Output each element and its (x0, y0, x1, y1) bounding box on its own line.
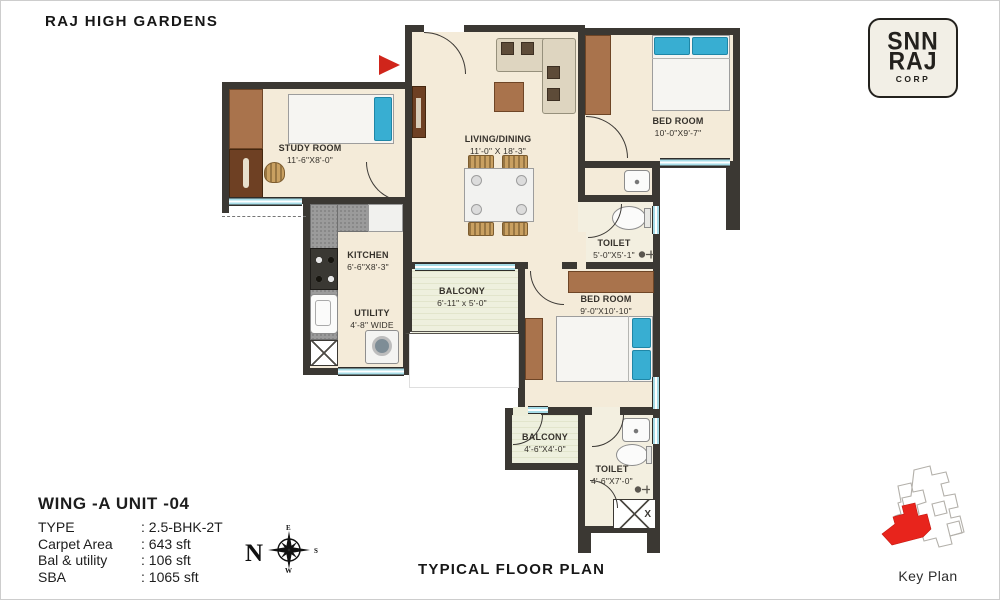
bed-sheet-line (628, 316, 629, 382)
room-name: UTILITY (350, 308, 393, 320)
info-label: SBA (38, 569, 141, 586)
room-name: STUDY ROOM (279, 143, 342, 155)
balcony-2-label: BALCONY 4'-6"X4'-0" (522, 432, 568, 455)
room-dims: 4'-6"X4'-0" (522, 444, 568, 455)
info-label: Carpet Area (38, 536, 141, 553)
unit-title: WING -A UNIT -04 (38, 494, 223, 514)
study-bed-pillow (374, 97, 392, 141)
brand-logo: SNN RAJ CORP (868, 18, 958, 98)
wall-segment (647, 533, 660, 553)
bedroom-2-wardrobe-top (568, 271, 654, 293)
bedroom-1-label: BED ROOM 10'-0"X9'-7" (652, 116, 703, 139)
sofa-pillow (501, 42, 514, 55)
toilet-2-wc-icon (616, 444, 648, 466)
dining-chair (502, 222, 528, 236)
toilet-2-washbasin-icon (622, 418, 650, 442)
toilet-2-wc-tank (646, 446, 652, 464)
logo-line-3: CORP (896, 74, 931, 84)
shower-icon (638, 249, 656, 260)
page-title: RAJ HIGH GARDENS (45, 13, 218, 30)
bed-sheet-line (652, 58, 730, 59)
info-row: SBA : 1065 sft (38, 569, 223, 586)
entry-door-opening (424, 25, 464, 32)
room-name: BED ROOM (652, 116, 703, 128)
room-name: BALCONY (522, 432, 568, 444)
bedroom-1-wardrobe (585, 35, 611, 115)
washbasin-icon (624, 170, 650, 192)
room-dims: 6'-11" x 5'-0" (437, 298, 487, 309)
room-name: TOILET (591, 464, 633, 476)
plan-caption: TYPICAL FLOOR PLAN (418, 561, 605, 578)
compass-icon: N E S W (243, 524, 321, 574)
balcony-1-label: BALCONY 6'-11" x 5'-0" (437, 286, 487, 309)
dining-chair (468, 222, 494, 236)
info-row: Bal & utility : 106 sft (38, 552, 223, 569)
bedroom-2-small-window (528, 406, 548, 414)
shower-icon (634, 484, 652, 495)
dining-chair (468, 155, 494, 169)
room-dims: 5'-0"X5'-1" (593, 250, 635, 261)
toilet-1-wc-tank (644, 208, 651, 228)
key-plan (862, 462, 994, 562)
washing-machine-drum (372, 336, 392, 356)
sofa-pillow (521, 42, 534, 55)
shaft-label: X (644, 509, 651, 520)
balcony-1-slider-window (415, 263, 515, 271)
room-name: TOILET (593, 238, 635, 250)
compass-star (268, 531, 310, 569)
room-dims: 11'-0" X 18'-3" (465, 146, 532, 157)
utility-window (338, 367, 404, 376)
logo-line-2: RAJ (888, 51, 937, 73)
room-dims: 10'-0"X9'-7" (652, 128, 703, 139)
shaft-box: X (613, 499, 656, 529)
wall-segment (726, 168, 740, 230)
sink-basin (315, 300, 331, 326)
room-dims: 9'-0"X10'-10" (580, 306, 632, 317)
bedroom-1-pillow (654, 37, 690, 55)
info-row: Carpet Area : 643 sft (38, 536, 223, 553)
kitchen-sink (310, 294, 338, 334)
toilet-2-window (652, 418, 660, 444)
compass-north-label: N (245, 540, 263, 567)
toilet-1-label: TOILET 5'-0"X5'-1" (593, 238, 635, 261)
kitchen-counter-corner (368, 204, 403, 232)
room-name: BALCONY (437, 286, 487, 298)
sofa-pillow (547, 66, 560, 79)
dining-chair (502, 155, 528, 169)
stove (310, 248, 338, 290)
utility-label: UTILITY 4'-8" WIDE (350, 308, 393, 331)
room-dims: 4'-8" WIDE (350, 320, 393, 331)
washing-machine (365, 330, 399, 364)
compass-west-label: W (285, 567, 292, 574)
toilet-1-window (652, 206, 660, 234)
bedroom-1-pillow (692, 37, 728, 55)
bedroom-2-pillow (632, 350, 651, 380)
room-name: LIVING/DINING (465, 134, 532, 146)
floor-plan-page: { "title": "RAJ HIGH GARDENS", "caption"… (0, 0, 1000, 600)
plate (471, 175, 482, 186)
sofa-pillow (547, 88, 560, 101)
bedroom-2-window (652, 377, 660, 409)
unit-info: WING -A UNIT -04 TYPE : 2.5-BHK-2T Carpe… (38, 494, 223, 585)
tv-screen (416, 98, 421, 128)
plate (516, 204, 527, 215)
study-room-label: STUDY ROOM 11'-6"X8'-0" (279, 143, 342, 166)
bedroom-2-door-opening (528, 262, 562, 271)
info-value: : 643 sft (141, 536, 191, 553)
info-row: TYPE : 2.5-BHK-2T (38, 519, 223, 536)
toilet-2-label: TOILET 4'-6"X7'-0" (591, 464, 633, 487)
entry-arrow-icon (379, 55, 400, 75)
bedroom-1-window (660, 158, 730, 167)
room-dims: 4'-6"X7'-0" (591, 476, 633, 487)
info-value: : 1065 sft (141, 569, 199, 586)
room-dims: 11'-6"X8'-0" (279, 155, 342, 166)
living-dining-label: LIVING/DINING 11'-0" X 18'-3" (465, 134, 532, 157)
coffee-table (494, 82, 524, 112)
compass-south-label: S (314, 547, 318, 555)
study-desk-detail (243, 158, 249, 188)
study-wardrobe (229, 89, 263, 149)
bedroom-2-label: BED ROOM 9'-0"X10'-10" (580, 294, 632, 317)
wall-segment (578, 533, 591, 553)
plate (516, 175, 527, 186)
bedroom-2-wardrobe-left (525, 318, 543, 380)
kitchen-label: KITCHEN 6'-6"X8'-3" (347, 250, 389, 273)
bedroom-2-pillow (632, 318, 651, 348)
room-name: KITCHEN (347, 250, 389, 262)
plate (471, 204, 482, 215)
room-name: BED ROOM (580, 294, 632, 306)
study-window (229, 197, 302, 206)
kitchen-hatch-box (310, 340, 338, 366)
dining-table (464, 168, 534, 222)
room-dims: 6'-6"X8'-3" (347, 262, 389, 273)
key-plan-label: Key Plan (898, 568, 957, 584)
info-value: : 106 sft (141, 552, 191, 569)
toilet-1-door-opening (578, 202, 586, 232)
info-label: Bal & utility (38, 552, 141, 569)
info-label: TYPE (38, 519, 141, 536)
compass-east-label: E (286, 524, 291, 532)
open-area (409, 334, 519, 388)
info-value: : 2.5-BHK-2T (141, 519, 223, 536)
corridor-opening (577, 226, 586, 270)
